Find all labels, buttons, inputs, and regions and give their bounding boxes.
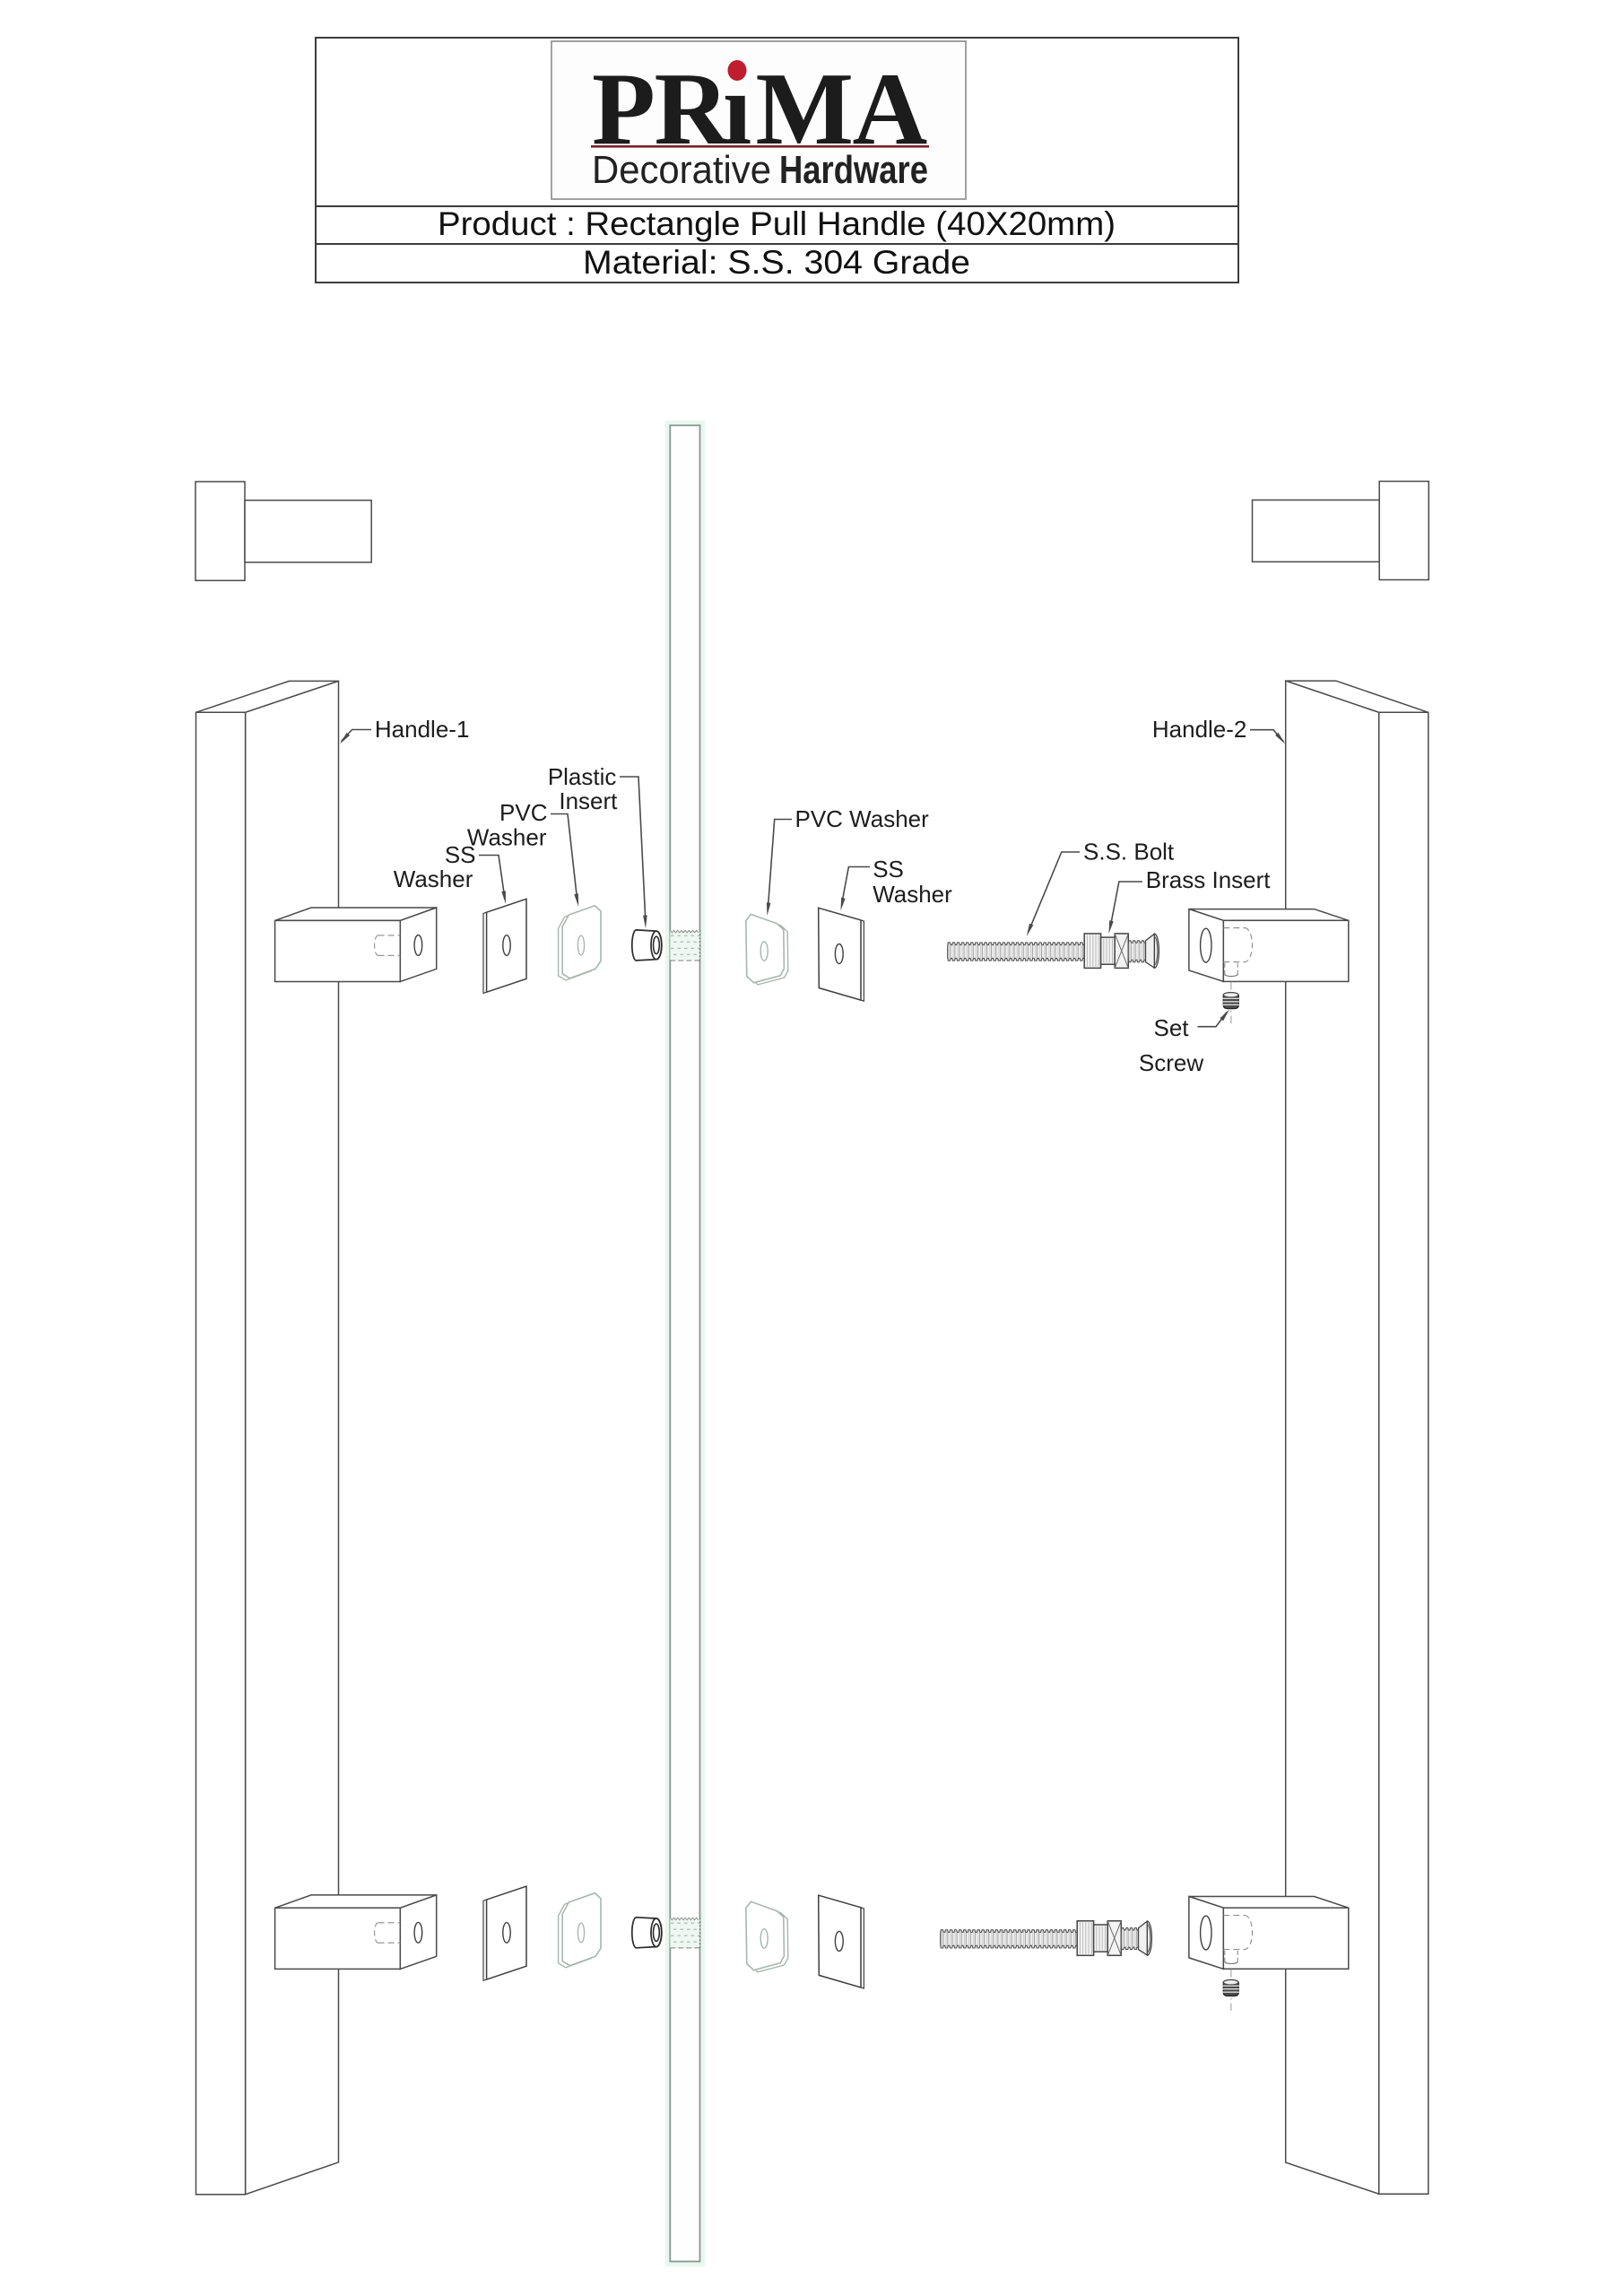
svg-text:Brass Insert: Brass Insert (1146, 866, 1271, 893)
svg-text:Washer: Washer (873, 881, 952, 908)
svg-text:Washer: Washer (394, 865, 473, 892)
svg-text:Material: S.S. 304 Grade: Material: S.S. 304 Grade (583, 244, 970, 281)
svg-text:Screw: Screw (1139, 1049, 1203, 1076)
svg-text:Plastic: Plastic (548, 763, 617, 790)
svg-text:Insert: Insert (559, 787, 618, 814)
svg-text:Washer: Washer (467, 824, 547, 851)
svg-text:Set: Set (1153, 1014, 1189, 1041)
svg-text:Handle-1: Handle-1 (375, 716, 470, 743)
svg-text:S.S. Bolt: S.S. Bolt (1083, 839, 1175, 865)
svg-text:Product : Rectangle Pull Handl: Product : Rectangle Pull Handle (40X20mm… (438, 205, 1116, 242)
svg-text:PVC Washer: PVC Washer (795, 805, 930, 832)
svg-text:Decorative: Decorative (592, 148, 771, 192)
svg-text:Hardware: Hardware (779, 148, 928, 192)
svg-text:PVC: PVC (499, 799, 547, 826)
svg-text:SS: SS (873, 856, 904, 883)
svg-text:Handle-2: Handle-2 (1152, 716, 1247, 743)
